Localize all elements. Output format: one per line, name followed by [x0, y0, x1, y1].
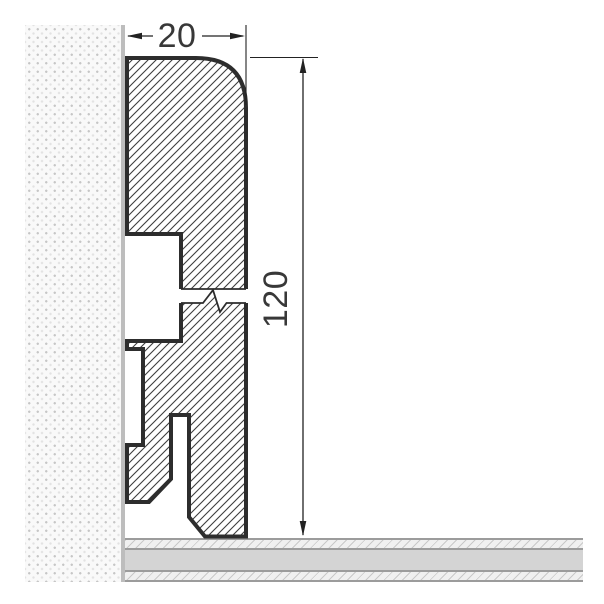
arrow-left-icon [127, 33, 142, 40]
skirting-profile-upper-section [127, 58, 246, 289]
skirting-profile-drawing [0, 0, 604, 604]
height-dimension-label: 120 [259, 270, 293, 328]
width-dimension-label: 20 [154, 19, 201, 53]
technical-drawing-canvas: 20 120 [0, 0, 604, 604]
arrow-right-icon [230, 33, 245, 40]
skirting-profile-lower-section [127, 290, 246, 537]
arrow-down-icon [300, 521, 307, 536]
arrow-up-icon [300, 58, 307, 73]
